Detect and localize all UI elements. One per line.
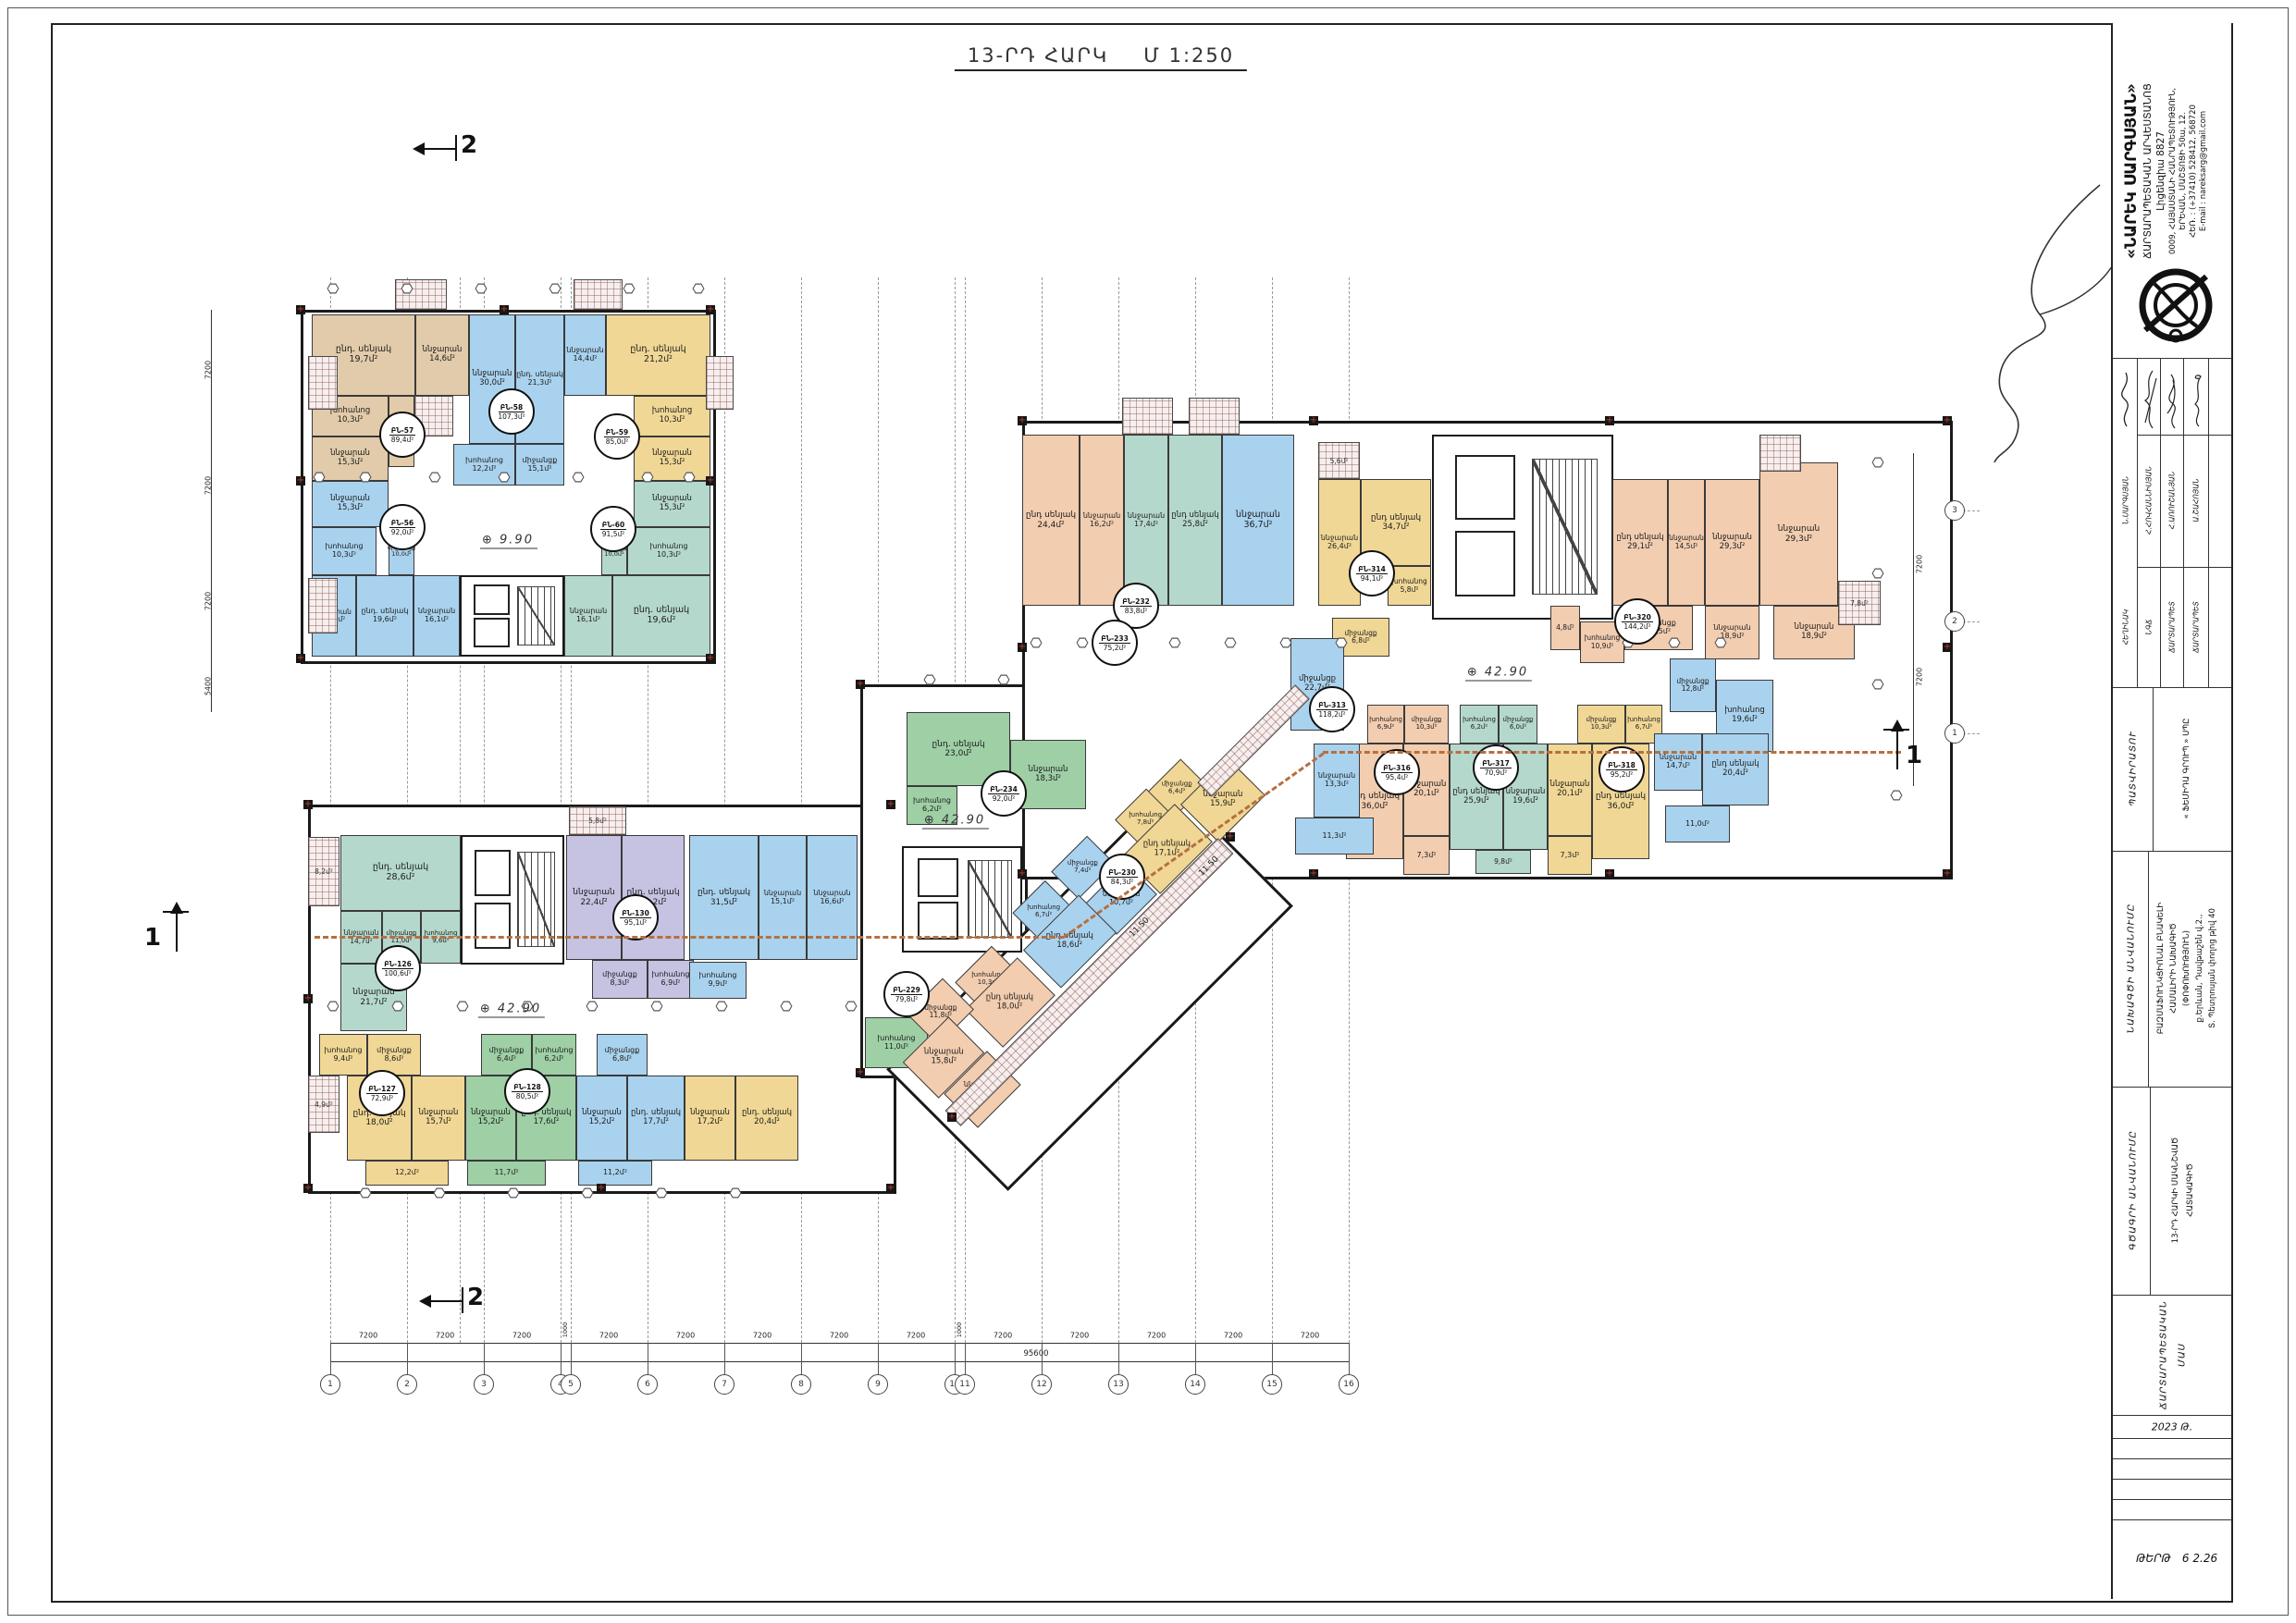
elevator-shaft bbox=[474, 584, 510, 615]
room-label: ընդ սենյակ36,0մ² bbox=[1596, 792, 1646, 810]
room-label: ննջարան15,3մ² bbox=[330, 495, 370, 512]
room: ընդ սենյակ25,8մ² bbox=[1168, 435, 1222, 606]
grid-bubble: 15 bbox=[1262, 1374, 1282, 1395]
floor-plan: ընդ. սենյակ19,7մ²ննջարան14,6մ²ննջարան30,… bbox=[0, 0, 2296, 1623]
room: ընդ. սենյակ20,4մ² bbox=[735, 1076, 798, 1161]
drawing-label: ԳԾԱԳՐԻ ԱՆՎԱՆՈՒՄԸ bbox=[2129, 1130, 2139, 1250]
balcony: 7,3մ² bbox=[1548, 836, 1592, 875]
hex-marker bbox=[327, 284, 339, 294]
wall-pier: + bbox=[856, 680, 865, 689]
apartment-badge: ԲՆ-22979,8մ² bbox=[883, 971, 930, 1017]
grid-bubble-stem bbox=[965, 1343, 966, 1374]
balcony: 7,3մ² bbox=[1403, 836, 1450, 875]
drawing-sheet: 13-ՐԴ ՀԱՐԿՄ 1:250 ընդ. սենյակ19,7մ²ննջար… bbox=[0, 0, 2296, 1623]
grid-bubble-stem bbox=[724, 1343, 725, 1374]
tb-col-line bbox=[2153, 687, 2154, 851]
grid-bubble: 3 bbox=[1944, 500, 1965, 521]
room-label: ննջարան14,7մ² bbox=[1660, 754, 1697, 770]
company-name: «ՆԱՐԵԿ ՍԱՐԳՍՅԱՆ» bbox=[2122, 83, 2141, 259]
balcony-hatch: 7,8մ² bbox=[1838, 581, 1881, 625]
room-label: ննջարան18,9մ² bbox=[1795, 623, 1834, 641]
grid-bubble-stem bbox=[484, 1343, 485, 1374]
tb-divider bbox=[2113, 1087, 2231, 1088]
tb-divider bbox=[2113, 687, 2231, 688]
tb-divider bbox=[2113, 1438, 2231, 1439]
elevation-mark: ⊕ 42.90 bbox=[478, 1002, 545, 1018]
team-role-3: ՃԱՐՏԱՐԱՊԵՏ bbox=[2192, 601, 2201, 652]
wall-pier: + bbox=[597, 1184, 606, 1193]
elevator-shaft bbox=[474, 618, 510, 648]
grid-bubble: 12 bbox=[1031, 1374, 1052, 1395]
room: ընդ սենյակ20,4մ² bbox=[1702, 733, 1769, 805]
stair-flight bbox=[1532, 459, 1598, 595]
balcony-hatch: 5,6մ² bbox=[1318, 442, 1360, 479]
balcony-hatch bbox=[395, 279, 447, 310]
section-tick bbox=[462, 1287, 463, 1313]
tb-divider bbox=[2137, 435, 2231, 436]
room-label: ննջարան16,1մ² bbox=[418, 608, 455, 624]
room: խոհանոց6,2մ² bbox=[1460, 705, 1499, 744]
dim-label: 1000 bbox=[562, 1322, 569, 1338]
room: ննջարան15,3մ² bbox=[634, 481, 710, 527]
room: ննջարան16,2մ² bbox=[1080, 435, 1124, 606]
company-address: ԵՐԵՎԱՆ, ՄԱՇՏՈՑԻ 50ա, 12. bbox=[2179, 112, 2188, 230]
section-number: 1 bbox=[144, 924, 161, 952]
room-label: ննջարան15,2մ² bbox=[582, 1109, 622, 1126]
company-logo bbox=[2136, 265, 2216, 345]
dim-label: 7200 bbox=[204, 592, 213, 610]
wall-pier: + bbox=[1943, 643, 1952, 652]
room-label: ննջարան14,5մ² bbox=[1669, 535, 1704, 550]
grid-bubble-stem bbox=[1195, 1343, 1196, 1374]
grid-bubble-stem bbox=[1272, 1343, 1273, 1374]
wall-pier: + bbox=[303, 994, 313, 1003]
team-name-3: Ա.ՇԱՀՈՅԱՆ bbox=[2192, 478, 2201, 522]
wall-pier: + bbox=[1309, 869, 1318, 879]
stair-core bbox=[460, 575, 564, 657]
room-label: ընդ. սենյակ23,0մ² bbox=[932, 740, 984, 758]
apartment-badge: ԲՆ-12772,9մ² bbox=[359, 1070, 405, 1116]
section-arrow-head bbox=[413, 142, 425, 155]
balcony-hatch bbox=[574, 279, 623, 310]
hex-marker bbox=[623, 284, 636, 294]
drawing-line-0: 13-ՐԴ ՀԱՐԿԻ ՄԱԿՆՇՎԱԾ bbox=[2171, 1137, 2180, 1244]
room-label: միջանցք6,4մ² bbox=[1162, 781, 1192, 796]
project-line-2: (ՓՈՓՈԽՈՒԹՅՈՒՆ) bbox=[2182, 930, 2191, 1006]
room-label: ննջարան29,3մ² bbox=[1778, 524, 1820, 543]
tb-col-line bbox=[2148, 851, 2149, 1087]
room-label: ընդ. սենյակ21,2մ² bbox=[630, 345, 685, 364]
stair-flight bbox=[968, 860, 1011, 938]
room-label: 11,2մ² bbox=[603, 1169, 627, 1177]
room-label: ննջարան15,3մ² bbox=[652, 449, 692, 467]
balcony-hatch bbox=[706, 356, 734, 410]
dim-label: 7200 bbox=[676, 1332, 695, 1340]
room: ընդ սենյակ29,1մ² bbox=[1612, 479, 1668, 606]
room-label: միջանցք12,8մ² bbox=[1676, 678, 1709, 694]
apartment-badge: ԲՆ-5789,4մ² bbox=[379, 412, 426, 458]
room: ննջարան36,7մ² bbox=[1222, 435, 1294, 606]
team-role-0: ՀԵՂԻՆԱԿ bbox=[2122, 609, 2130, 645]
grid-bubble: 11 bbox=[955, 1374, 975, 1395]
wall-pier: + bbox=[1018, 416, 1027, 425]
grid-bubble: 2 bbox=[397, 1374, 417, 1395]
section-arrow-head bbox=[419, 1295, 431, 1308]
balcony: 4,8մ² bbox=[1550, 606, 1580, 650]
grid-bubble-stem bbox=[1349, 1343, 1350, 1374]
room-label: ննջարան16,2մ² bbox=[1083, 512, 1120, 529]
grid-bubble: 8 bbox=[791, 1374, 811, 1395]
grid-bubble: 1 bbox=[320, 1374, 340, 1395]
room-label: խոհանոց6,2մ² bbox=[536, 1047, 574, 1064]
balcony-hatch bbox=[1759, 435, 1801, 472]
room: ննջարան29,3մ² bbox=[1705, 479, 1759, 606]
section-tick bbox=[163, 911, 189, 913]
room-label: խոհանոց10,3մ² bbox=[326, 543, 364, 559]
room-label: ընդ. սենյակ19,6մ² bbox=[634, 606, 689, 625]
room-label: խոհանոց12,2մ² bbox=[465, 457, 503, 473]
elevator-shaft bbox=[1455, 531, 1515, 596]
signature bbox=[2145, 371, 2156, 428]
wall-pier: + bbox=[1605, 416, 1614, 425]
room: ննջարան16,1մ² bbox=[414, 575, 460, 657]
room-label: միջանցք15,1մ² bbox=[523, 457, 558, 473]
balcony: 11,3մ² bbox=[1295, 818, 1374, 855]
apartment-badge: ԲՆ-126100,6մ² bbox=[375, 945, 421, 991]
room-label: խոհանոց6,2մ² bbox=[1463, 717, 1496, 732]
stair-core bbox=[1432, 435, 1613, 620]
room-label: ննջարան21,7մ² bbox=[352, 988, 394, 1006]
signature bbox=[2167, 375, 2175, 428]
room-label: ննջարան17,4մ² bbox=[1128, 512, 1165, 529]
room: ննջարան14,6մ² bbox=[415, 314, 469, 396]
section-marker: 1 bbox=[1878, 719, 1943, 784]
room-label: ընդ. սենյակ17,7մ² bbox=[631, 1109, 681, 1126]
balcony-hatch bbox=[308, 578, 338, 633]
balcony-hatch: 8,2մ² bbox=[308, 837, 339, 906]
signature bbox=[2122, 373, 2129, 426]
apartment-badge: ԲՆ-12880,5մ² bbox=[504, 1068, 550, 1114]
balcony-hatch bbox=[1189, 398, 1240, 435]
room-label: միջանցք6,4մ² bbox=[489, 1047, 525, 1064]
wall-pier: + bbox=[1018, 869, 1027, 879]
room-label: ընդ սենյակ24,4մ² bbox=[1026, 510, 1076, 529]
dim-label: 7200 bbox=[1147, 1332, 1166, 1340]
room-label: 11,7մ² bbox=[494, 1169, 518, 1177]
tb-divider bbox=[2137, 567, 2231, 568]
room-label: խոհանոց10,3մ² bbox=[330, 407, 371, 424]
room-label: միջանցք6,8մ² bbox=[1344, 630, 1376, 646]
room: խոհանոց10,3մ² bbox=[627, 527, 710, 575]
wall-pier: + bbox=[886, 800, 895, 809]
tb-col-line bbox=[2208, 358, 2209, 687]
room: ննջարան14,4մ² bbox=[564, 314, 606, 396]
dim-label: 7200 bbox=[1301, 1332, 1319, 1340]
wall-pier: + bbox=[296, 654, 305, 663]
room-label: ընդ սենյակ29,1մ² bbox=[1616, 534, 1663, 551]
room-label: խոհանոց11,0մ² bbox=[878, 1035, 916, 1051]
hex-marker bbox=[475, 284, 488, 294]
section-arrow-line bbox=[176, 911, 178, 952]
room: միջանցք6,8մ² bbox=[597, 1034, 648, 1076]
room: խոհանոց6,2մ² bbox=[532, 1034, 576, 1076]
room-label: ննջարան36,7մ² bbox=[1236, 510, 1280, 530]
hex-marker bbox=[924, 675, 936, 685]
apartment-badge: ԲՆ-6091,5մ² bbox=[590, 506, 636, 552]
grid-bubble-stem bbox=[648, 1343, 648, 1374]
grid-bubble: 9 bbox=[868, 1374, 888, 1395]
grid-bubble: 6 bbox=[637, 1374, 658, 1395]
room: միջանցք10,3մ² bbox=[1577, 705, 1625, 744]
wall-pier: + bbox=[886, 1184, 895, 1193]
apartment-badge: ԲՆ-23492,0մ² bbox=[981, 770, 1027, 817]
tb-divider bbox=[2113, 1458, 2231, 1459]
project-line-3: ք.Երևան, Դավթաշեն վ.2., bbox=[2195, 915, 2204, 1023]
room-label: ննջարան29,3մ² bbox=[1712, 534, 1752, 551]
wall-pier: + bbox=[296, 305, 305, 314]
room-label: ննջարան15,2մ² bbox=[471, 1109, 511, 1126]
room-label: միջանցք10,3մ² bbox=[1586, 717, 1617, 732]
wall-pier: + bbox=[706, 654, 715, 663]
room-label: ընդ սենյակ18,0մ² bbox=[986, 993, 1033, 1011]
team-name-1: Հ.ՀՈՎՀԱՆՆԻՍՅԱՆ bbox=[2145, 466, 2154, 535]
room-label: միջանցք11,8մ² bbox=[924, 1004, 957, 1020]
apartment-badge: ԲՆ-320144,2մ² bbox=[1614, 598, 1660, 645]
wall-pier: + bbox=[706, 476, 715, 486]
room-label: ննջարան22,4մ² bbox=[573, 888, 614, 906]
room: խոհանոց9,4մ² bbox=[319, 1034, 367, 1076]
grid-bubble-stem bbox=[1042, 1343, 1043, 1374]
tb-divider bbox=[2113, 1479, 2231, 1480]
grid-bubble: 2 bbox=[1944, 611, 1965, 632]
grid-bubble-stem bbox=[571, 1343, 572, 1374]
room: ննջարան20,1մ² bbox=[1548, 744, 1592, 836]
room: ննջարան16,6մ² bbox=[807, 835, 858, 960]
wall-pier: + bbox=[856, 1068, 865, 1077]
apartment-badge: ԲՆ-58107,3մ² bbox=[488, 388, 535, 435]
dim-label: 5400 bbox=[204, 677, 213, 695]
room-label: ննջարան15,3մ² bbox=[330, 449, 370, 467]
wall-pier: + bbox=[1226, 832, 1235, 842]
hex-marker bbox=[998, 675, 1010, 685]
room-label: 9,8մ² bbox=[1494, 858, 1512, 866]
room-label: ընդ. սենյակ28,6մ² bbox=[373, 863, 428, 882]
room-label: 12,2մ² bbox=[395, 1169, 419, 1177]
apartment-badge: ԲՆ-313118,2մ² bbox=[1309, 686, 1355, 732]
room: ննջարան18,9մ² bbox=[1705, 606, 1759, 659]
tb-divider bbox=[2113, 1295, 2231, 1296]
room: ննջարան17,2մ² bbox=[685, 1076, 735, 1161]
tb-col-line bbox=[2137, 358, 2138, 687]
room-label: ննջարան15,1մ² bbox=[764, 890, 801, 906]
room: խոհանոց10,3մ² bbox=[312, 527, 376, 575]
grid-bubble: 5 bbox=[561, 1374, 581, 1395]
balcony-hatch bbox=[1122, 398, 1173, 435]
dim-label: 7200 bbox=[512, 1332, 531, 1340]
room-label: միջանցք8,6մ² bbox=[376, 1047, 412, 1064]
room: խոհանոց6,9մ² bbox=[648, 960, 694, 999]
room-label: ննջարան13,3մ² bbox=[1318, 772, 1355, 789]
grid-bubble-stem bbox=[407, 1343, 408, 1374]
room-label: միջանցք10,3մ² bbox=[1412, 717, 1442, 732]
room: խոհանոց9,9մ² bbox=[689, 962, 747, 999]
stair-core bbox=[461, 835, 564, 965]
dim-label: 7200 bbox=[599, 1332, 618, 1340]
grid-bubble-stem bbox=[561, 1343, 562, 1374]
section-number: 1 bbox=[1906, 742, 1922, 769]
room-label: ննջարան16,1մ² bbox=[570, 608, 607, 624]
team-name-2: Հ.ԱՌՈՒՇԱՆՅԱՆ bbox=[2168, 472, 2177, 530]
elevation-mark: ⊕ 9.90 bbox=[480, 534, 537, 549]
hex-marker bbox=[693, 284, 705, 294]
year: 2023 Թ. bbox=[2152, 1421, 2192, 1433]
balcony-hatch: 5,8մ² bbox=[569, 806, 626, 835]
apartment-badge: ԲՆ-5985,0մ² bbox=[594, 413, 640, 460]
room-label: խոհանոց6,9մ² bbox=[652, 971, 690, 988]
title-block: «ՆԱՐԵԿ ՍԱՐԳՍՅԱՆ» ՃԱՐՏԱՐԱՊԵՏԱԿԱՆ ԱՐՎԵՍՏԱՆ… bbox=[2111, 23, 2231, 1599]
section-marker: 2 bbox=[414, 129, 479, 194]
stair-flight bbox=[517, 852, 555, 947]
apartment-badge: ԲՆ-31494,1մ² bbox=[1349, 550, 1395, 596]
room-label: ընդ սենյակ20,4մ² bbox=[1711, 760, 1759, 778]
company-phone: ՀԵՌ. : (+37410) 528412, 568720 bbox=[2189, 105, 2198, 238]
wall-pier: + bbox=[1605, 869, 1614, 879]
room-label: ընդ սենյակ25,8մ² bbox=[1171, 511, 1218, 529]
balcony: 11,2մ² bbox=[578, 1161, 652, 1186]
section-tick bbox=[455, 135, 457, 161]
room-label: 7,3մ² bbox=[1561, 852, 1580, 860]
wall-pier: + bbox=[1309, 416, 1318, 425]
room: ննջարան29,3մ² bbox=[1759, 462, 1838, 606]
tb-col-line bbox=[2160, 358, 2161, 687]
room-label: 11,0մ² bbox=[1685, 820, 1710, 829]
room-label: խոհանոց6,9մ² bbox=[1369, 717, 1402, 732]
balcony: 12,2մ² bbox=[365, 1161, 449, 1186]
balcony-hatch bbox=[308, 356, 338, 410]
balcony: 11,0մ² bbox=[1665, 805, 1730, 842]
grid-bubble-stem bbox=[801, 1343, 802, 1374]
revision-scribble bbox=[1989, 176, 2118, 472]
balcony: 9,8մ² bbox=[1475, 850, 1531, 874]
section-arrow-line bbox=[1896, 729, 1898, 769]
room-label: ընդ. սենյակ21,3մ² bbox=[516, 371, 563, 387]
dim-label: 1000 bbox=[956, 1322, 963, 1338]
grid-bubble-stem bbox=[878, 1343, 879, 1374]
room-label: միջանցք6,0մ² bbox=[1503, 717, 1534, 732]
wall-pier: + bbox=[296, 476, 305, 486]
room-label: միջանցք7,4մ² bbox=[1068, 860, 1098, 875]
sheet-label: ԹԵՐԹ bbox=[2136, 1552, 2171, 1565]
room-label: խոհանոց19,6մ² bbox=[1724, 707, 1765, 724]
room: ընդ. սենյակ19,6մ² bbox=[612, 575, 710, 657]
hex-marker bbox=[549, 284, 562, 294]
room-label: 11,3մ² bbox=[1322, 832, 1346, 841]
room-label: ընդ. սենյակ19,7մ² bbox=[336, 345, 391, 364]
project-line-0: ԲԱԶՄԱՖՈՒՆԿՑԻՈՆԱԼ ԲՆԱԿԵԼԻ bbox=[2156, 903, 2166, 1035]
room-label: ննջարան15,3մ² bbox=[652, 495, 692, 512]
signature bbox=[2195, 375, 2201, 426]
room: ննջարան15,7մ² bbox=[412, 1076, 465, 1161]
room-label: միջանցք8,3մ² bbox=[602, 971, 637, 988]
team-role-2: ՃԱՐՏԱՐԱՊԵՏ bbox=[2168, 601, 2177, 652]
sheet-number: 6 2.26 bbox=[2182, 1552, 2217, 1565]
room-label: խոհանոց6,7մ² bbox=[1627, 717, 1660, 732]
section-tick bbox=[1883, 729, 1909, 731]
wall-pier: + bbox=[303, 800, 313, 809]
room-label: խոհանոց5,8մ² bbox=[1391, 578, 1426, 594]
room: ընդ. սենյակ17,7մ² bbox=[627, 1076, 685, 1161]
section-line bbox=[315, 936, 1064, 939]
client-label: ՊԱՏՎԻՐԱՏՈՒ bbox=[2129, 731, 2139, 806]
grid-bubble-stem bbox=[955, 1343, 956, 1374]
elevator-shaft bbox=[1455, 455, 1515, 521]
room: ընդ. սենյակ21,2մ² bbox=[606, 314, 710, 396]
dim-label: 7200 bbox=[204, 476, 213, 495]
wall-pier: + bbox=[1943, 416, 1952, 425]
room-label: ընդ. սենյակ19,6մ² bbox=[362, 608, 409, 624]
room-label: միջանցք6,8մ² bbox=[605, 1047, 640, 1064]
team-name-0: Ն.ՍԱՐԳՍՅԱՆ bbox=[2122, 476, 2130, 524]
room-label: խոհանոց9,9մ² bbox=[699, 972, 737, 989]
company-email: E-mail : nareksarg@gmail.com bbox=[2199, 111, 2208, 231]
dim-label: 7200 bbox=[1070, 1332, 1089, 1340]
drawing-line-1: ՀԱՏԱԿԱԳԻԾ bbox=[2186, 1163, 2195, 1216]
room-label: խոհանոց10,3մ² bbox=[650, 543, 688, 559]
grid-bubble-stem bbox=[1118, 1343, 1119, 1374]
dim-label: 7200 bbox=[1224, 1332, 1242, 1340]
team-role-1: ՆԳՃ bbox=[2145, 620, 2154, 635]
room-label: ննջարան15,8մ² bbox=[924, 1049, 964, 1066]
apartment-badge: ԲՆ-23375,2մ² bbox=[1092, 620, 1138, 666]
elevation-mark: ⊕ 42.90 bbox=[1465, 666, 1532, 682]
room-label: խոհանոց9,4մ² bbox=[325, 1047, 363, 1064]
room-label: 7,3մ² bbox=[1417, 852, 1437, 860]
room-label: ննջարան16,6մ² bbox=[813, 890, 850, 906]
dim-label: 7200 bbox=[994, 1332, 1012, 1340]
company-type: ՃԱՐՏԱՐԱՊԵՏԱԿԱՆ ԱՐՎԵՍՏԱՆՈՑ bbox=[2142, 83, 2154, 259]
room: ընդ. սենյակ19,6մ² bbox=[356, 575, 414, 657]
tb-divider bbox=[2113, 358, 2231, 359]
grid-bubble: 7 bbox=[714, 1374, 734, 1395]
company-license: Լիցենզիա 8827 bbox=[2155, 131, 2166, 211]
room-label: ննջարան15,7մ² bbox=[419, 1109, 459, 1126]
project-label: ՆԱԽԱԳԾԻ ԱՆՎԱՆՈՒՄԸ bbox=[2127, 904, 2137, 1033]
elevator-shaft bbox=[475, 903, 511, 949]
dim-label: 7200 bbox=[753, 1332, 772, 1340]
room: ընդ. սենյակ28,6մ² bbox=[340, 835, 461, 911]
room: միջանցք10,3մ² bbox=[1404, 705, 1449, 744]
room: ննջարան17,4մ² bbox=[1124, 435, 1168, 606]
dim-label: 7200 bbox=[830, 1332, 848, 1340]
grid-bubble: 14 bbox=[1185, 1374, 1205, 1395]
section-number: 2 bbox=[461, 131, 477, 159]
tb-col-line bbox=[2150, 1087, 2151, 1295]
grid-bubble: 13 bbox=[1108, 1374, 1129, 1395]
balcony: 11,7մ² bbox=[467, 1161, 546, 1186]
room: խոհանոց6,9մ² bbox=[1367, 705, 1404, 744]
room-label: 4,8մ² bbox=[1556, 624, 1574, 632]
tb-divider bbox=[2113, 851, 2231, 852]
company-country: 0009, ՀԱՅԱՍՏԱՆԻ ՀԱՆՐԱՊԵՏՈՒԹՅՈՒՆ, bbox=[2168, 88, 2178, 254]
elevator-shaft bbox=[918, 858, 958, 897]
section-line bbox=[1323, 751, 1901, 754]
room-label: ննջարան18,3մ² bbox=[1029, 766, 1068, 783]
room: խոհանոց10,3մ² bbox=[634, 396, 710, 436]
apartment-badge: ԲՆ-5692,0մ² bbox=[379, 504, 426, 550]
elevator-shaft bbox=[475, 850, 511, 896]
room-label: ննջարան14,6մ² bbox=[423, 346, 463, 363]
tb-divider bbox=[2113, 1519, 2231, 1520]
